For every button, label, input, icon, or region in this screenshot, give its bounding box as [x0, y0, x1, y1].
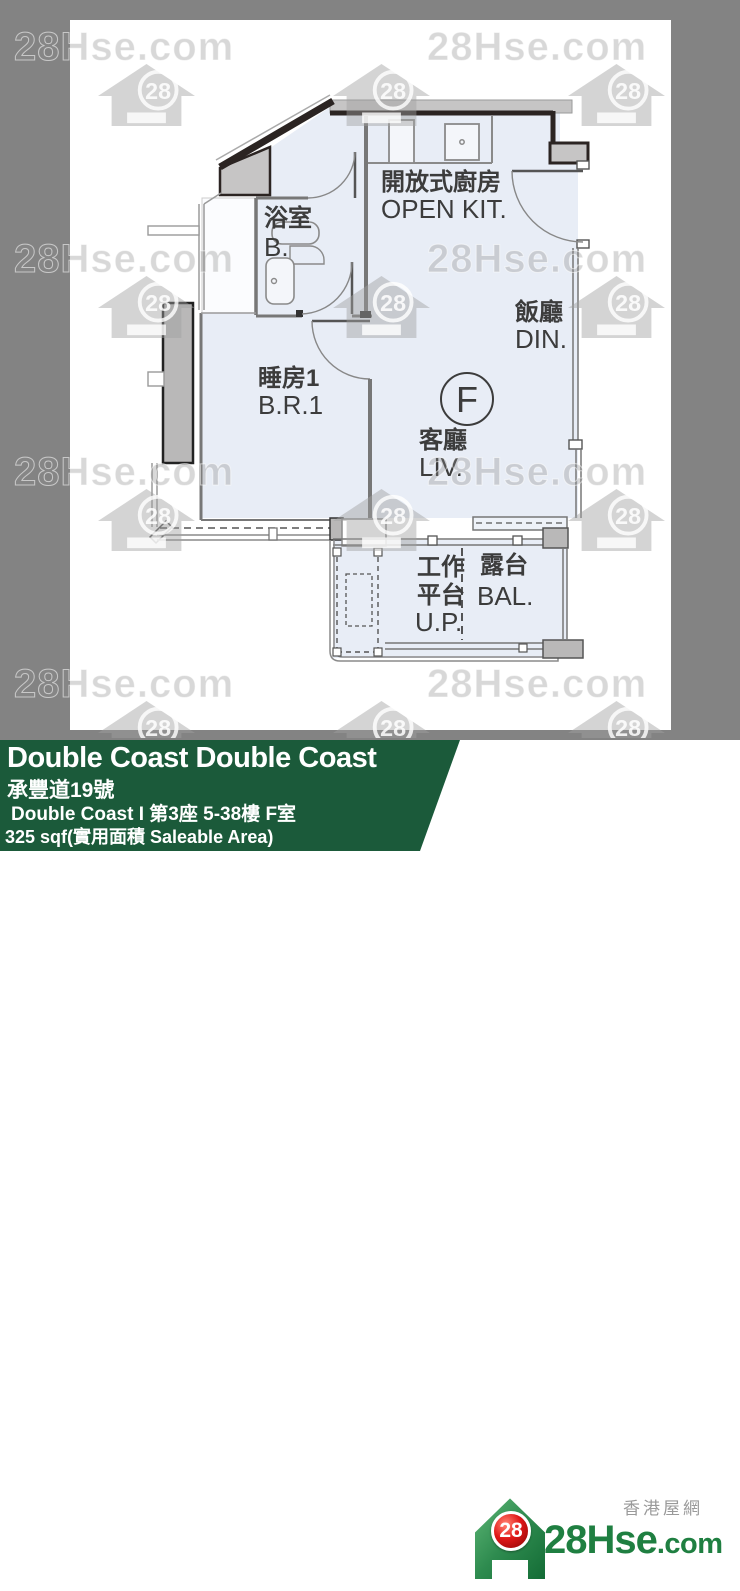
bath-label-en: B. [264, 232, 289, 262]
kitchen-sink [389, 120, 414, 163]
bal-rail-stop [519, 644, 527, 652]
bal-corner-block-top [543, 528, 568, 548]
info-bar: Double Coast Double Coast 承豐道19號 Double … [0, 740, 740, 851]
bath-label-cn: 浴室 [264, 204, 312, 232]
site-logo: 28 28Hse.com 香港屋網 [470, 1480, 740, 1591]
bay-end-block [330, 518, 343, 540]
property-title: Double Coast Double Coast [7, 742, 376, 775]
kitchen-stove [445, 124, 479, 160]
balcony-label-cn: 露台 [480, 551, 528, 579]
dining-label-en: DIN. [515, 324, 567, 354]
exterior-fin-wall [163, 303, 193, 463]
right-wall-jamb [569, 440, 582, 449]
kitchen-wall-end-cap [360, 311, 371, 318]
bedroom-label-cn: 睡房1 [258, 364, 319, 392]
property-area: 325 sqf(實用面積 Saleable Area) [5, 823, 273, 849]
rail-stop-2 [513, 536, 522, 545]
logo-28-badge: 28 [491, 1511, 531, 1551]
living-label-en: LIV. [419, 452, 463, 482]
utility-label-cn2: 平台 [417, 581, 465, 609]
floorplan-page: 開放式廚房 OPEN KIT. 飯廳 DIN. 浴室 B. 睡房1 B.R.1 … [0, 0, 740, 851]
entry-jamb-top [577, 161, 589, 169]
logo-tagline: 香港屋網 [623, 1494, 703, 1519]
logo-brand-main: 28Hse [544, 1518, 657, 1562]
utility-label-en: U.P. [415, 607, 462, 637]
living-label-cn: 客廳 [419, 426, 467, 454]
kitchen-label-en: OPEN KIT. [381, 194, 507, 224]
bathtub [266, 258, 294, 304]
balcony-label-en: BAL. [477, 581, 533, 611]
closet-corner-1 [333, 548, 341, 556]
up-entry-block [342, 519, 386, 546]
entry-column [550, 143, 588, 163]
property-unit: Double Coast I 第3座 5-38樓 F室 [11, 799, 296, 826]
bedroom-label-en: B.R.1 [258, 390, 323, 420]
bay-mullion [269, 528, 277, 540]
property-info-band: Double Coast Double Coast 承豐道19號 Double … [0, 740, 470, 851]
kitchen-label-cn: 開放式廚房 [381, 168, 501, 196]
utility-label-cn1: 工作 [417, 554, 465, 581]
fin-tick [148, 372, 164, 386]
unit-marker-letter: F [456, 379, 478, 420]
bal-corner-block-bottom [543, 640, 583, 658]
floorplan-drawing: 開放式廚房 OPEN KIT. 飯廳 DIN. 浴室 B. 睡房1 B.R.1 … [0, 0, 740, 851]
rail-stop-1 [428, 536, 437, 545]
dining-label-cn: 飯廳 [514, 298, 563, 326]
logo-brand-suffix: .com [657, 1528, 723, 1560]
closet-corner-4 [374, 648, 382, 656]
logo-brand-text: 28Hse.com [544, 1518, 723, 1563]
wing-wall-stub [148, 226, 199, 235]
closet-corner-2 [374, 548, 382, 556]
left-void [202, 198, 256, 313]
closet-corner-3 [333, 648, 341, 656]
bath-door-jamb [296, 310, 303, 317]
